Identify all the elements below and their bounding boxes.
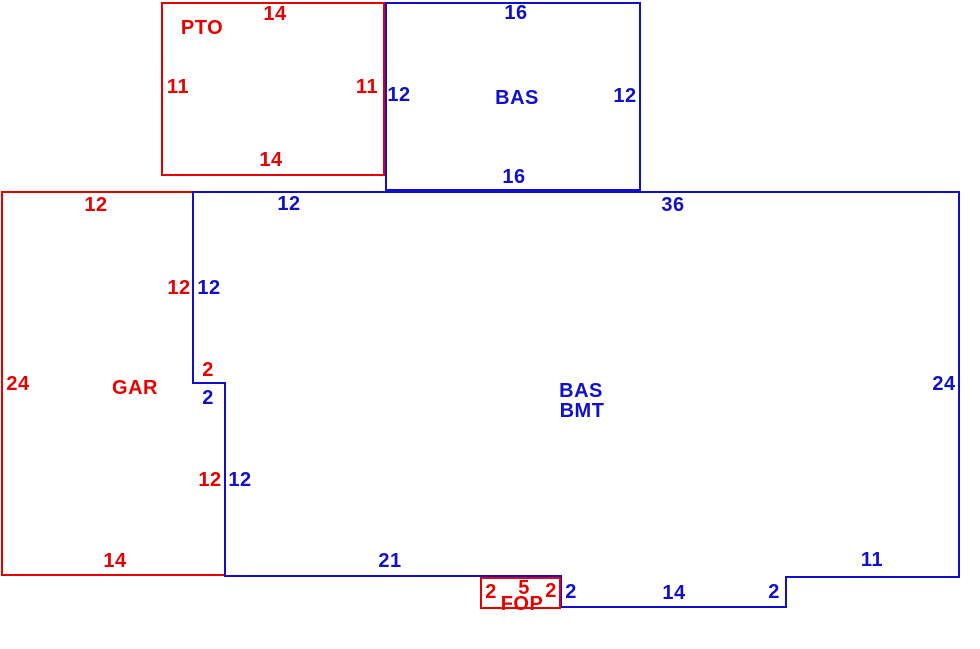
gar-dim-top: 12 <box>84 195 107 215</box>
gar-area-label: GAR <box>112 378 158 398</box>
sketch-shapes <box>0 0 980 649</box>
fop-dim-left: 2 <box>485 582 497 602</box>
bmt-dim-notch-upper: 12 <box>197 278 220 298</box>
bas-area-label: BAS <box>495 88 539 108</box>
bmt-dim-right-step: 2 <box>768 582 780 602</box>
gar-dim-right-upper: 12 <box>167 278 190 298</box>
bmt-dim-right: 24 <box>932 374 955 394</box>
pto-dim-top: 14 <box>263 4 286 24</box>
floorplan-sketch: 14PTO1111141612BAS121612123612122224GARB… <box>0 0 980 649</box>
gar-dim-bottom: 14 <box>103 551 126 571</box>
gar-dim-right-lower: 12 <box>198 470 221 490</box>
bmt-area-label-line1: BAS <box>559 381 603 401</box>
pto-area-label: PTO <box>181 18 223 38</box>
bmt-area-label-line2: BMT <box>560 401 605 421</box>
bmt-dim-fop-step: 2 <box>565 582 577 602</box>
gar-dim-left: 24 <box>6 374 29 394</box>
pto-dim-right: 11 <box>356 77 378 97</box>
bmt-dim-bottom-left: 21 <box>378 551 401 571</box>
bmt-dim-bottom-right: 11 <box>861 550 883 570</box>
bmt-dim-top-right: 36 <box>661 195 684 215</box>
fop-area-label: FOP <box>501 594 544 614</box>
bmt-dim-jog: 2 <box>202 388 214 408</box>
pto-dim-left: 11 <box>167 77 189 97</box>
bmt-dim-notch-lower: 12 <box>228 470 251 490</box>
gar-dim-jog: 2 <box>202 360 214 380</box>
bmt-dim-bottom-mid: 14 <box>662 583 685 603</box>
pto-dim-bottom: 14 <box>259 150 282 170</box>
bmt-dim-top-left: 12 <box>277 194 300 214</box>
bas-dim-top: 16 <box>504 3 527 23</box>
bas-dim-left: 12 <box>387 85 410 105</box>
bas-dim-right: 12 <box>613 86 636 106</box>
fop-dim-right: 2 <box>545 581 557 601</box>
bas-dim-bottom: 16 <box>502 167 525 187</box>
